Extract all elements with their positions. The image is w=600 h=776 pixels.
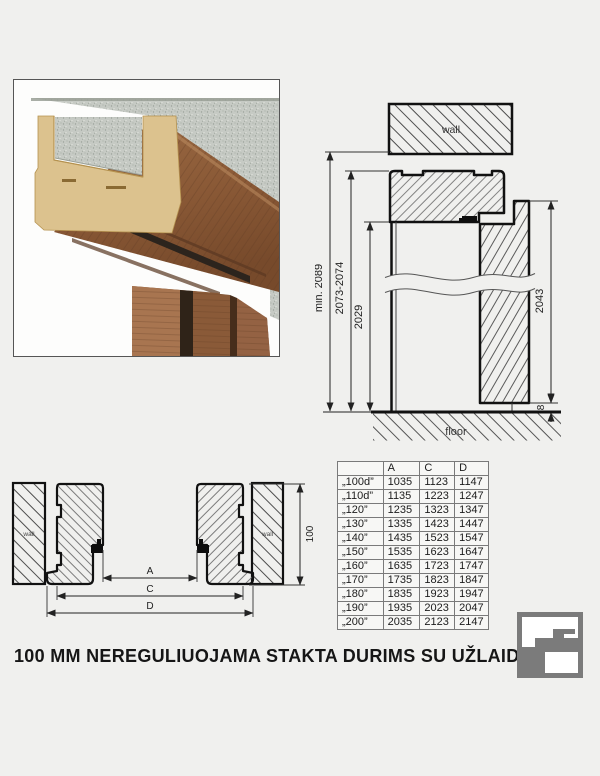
table-row: „130”133514231447 — [338, 518, 489, 532]
a-cell: 1935 — [383, 602, 420, 616]
table-row: „150”153516231647 — [338, 546, 489, 560]
d-cell: 2047 — [455, 602, 489, 616]
table-row: „190”193520232047 — [338, 602, 489, 616]
frame-header-profile — [390, 171, 504, 222]
a-cell: 1535 — [383, 546, 420, 560]
page-title: 100 MM NEREGULIUOJAMA STAKTA DURIMS SU U… — [14, 646, 574, 667]
floor-hatch — [373, 414, 561, 441]
header-size — [338, 462, 384, 476]
a-cell: 1135 — [383, 490, 420, 504]
c-cell: 1723 — [420, 560, 455, 574]
wall-label: wall — [441, 124, 460, 136]
d-cell: 1347 — [455, 504, 489, 518]
jamb-seal-groove — [180, 290, 193, 356]
extension-lines-left — [325, 152, 389, 222]
floor-label: floor — [445, 426, 467, 438]
table-row: „140”143515231547 — [338, 532, 489, 546]
d-cell: 1947 — [455, 588, 489, 602]
a-cell: 1735 — [383, 574, 420, 588]
wall-label-right: wall — [261, 531, 274, 538]
horizontal-section-diagram: wall wall 100 A C — [6, 475, 326, 625]
d-cell: 1747 — [455, 560, 489, 574]
table-row: „160”163517231747 — [338, 560, 489, 574]
c-cell: 1923 — [420, 588, 455, 602]
a-cell: 1035 — [383, 476, 420, 490]
size-cell: „130” — [338, 518, 384, 532]
jamb-profile-right — [197, 484, 253, 584]
frame-corner-photo — [13, 79, 280, 357]
dim-a-label: A — [147, 566, 154, 577]
size-cell: „170” — [338, 574, 384, 588]
size-cell: „120” — [338, 504, 384, 518]
d-cell: 1647 — [455, 546, 489, 560]
dim-min-opening-height: min. 2089 — [315, 264, 325, 312]
c-cell: 1223 — [420, 490, 455, 504]
table-row: „120”123513231347 — [338, 504, 489, 518]
jamb-profile-left — [47, 484, 103, 584]
dim-clear-height: 2029 — [353, 305, 365, 329]
c-cell: 1423 — [420, 518, 455, 532]
header-a: A — [383, 462, 420, 476]
c-cell: 1523 — [420, 532, 455, 546]
section-break — [385, 274, 535, 296]
header-c: C — [420, 462, 455, 476]
a-cell: 1235 — [383, 504, 420, 518]
table-row: „180”183519231947 — [338, 588, 489, 602]
wall-label-left: wall — [22, 531, 35, 538]
a-cell: 1835 — [383, 588, 420, 602]
d-cell: 2147 — [455, 616, 489, 630]
d-cell: 1547 — [455, 532, 489, 546]
header-d: D — [455, 462, 489, 476]
a-cell: 2035 — [383, 616, 420, 630]
c-cell: 1323 — [420, 504, 455, 518]
c-cell: 1823 — [420, 574, 455, 588]
dim-d-label: D — [146, 601, 153, 612]
table-header-row: A C D — [338, 462, 489, 476]
size-cell: „100d” — [338, 476, 384, 490]
dim-c-label: C — [146, 584, 153, 595]
size-cell: „150” — [338, 546, 384, 560]
size-table-body: „100d”103511231147„110d”113512231247„120… — [338, 476, 489, 630]
table-row: „170”173518231847 — [338, 574, 489, 588]
dim-frame-depth: 100 — [305, 525, 316, 542]
size-cell: „110d” — [338, 490, 384, 504]
size-table: A C D „100d”103511231147„110d”1135122312… — [337, 461, 489, 630]
a-cell: 1635 — [383, 560, 420, 574]
c-cell: 1623 — [420, 546, 455, 560]
frame-corner-render — [14, 80, 279, 356]
dim-leaf-height: 2043 — [534, 289, 546, 313]
size-cell: „190” — [338, 602, 384, 616]
vertical-section-diagram: wall floor — [315, 95, 600, 447]
size-cell: „140” — [338, 532, 384, 546]
door-leaf-section — [480, 201, 529, 403]
table-row: „100d”103511231147 — [338, 476, 489, 490]
a-cell: 1335 — [383, 518, 420, 532]
size-cell: „160” — [338, 560, 384, 574]
table-row: „200”203521232147 — [338, 616, 489, 630]
d-cell: 1147 — [455, 476, 489, 490]
c-cell: 1123 — [420, 476, 455, 490]
d-cell: 1447 — [455, 518, 489, 532]
d-cell: 1847 — [455, 574, 489, 588]
c-cell: 2023 — [420, 602, 455, 616]
d-cell: 1247 — [455, 490, 489, 504]
dim-floor-gap: 8 — [536, 404, 547, 410]
brand-logo — [515, 610, 585, 680]
a-cell: 1435 — [383, 532, 420, 546]
dim-frame-height: 2073-2074 — [334, 262, 346, 315]
c-cell: 2123 — [420, 616, 455, 630]
size-cell: „180” — [338, 588, 384, 602]
table-row: „110d”113512231247 — [338, 490, 489, 504]
size-cell: „200” — [338, 616, 384, 630]
